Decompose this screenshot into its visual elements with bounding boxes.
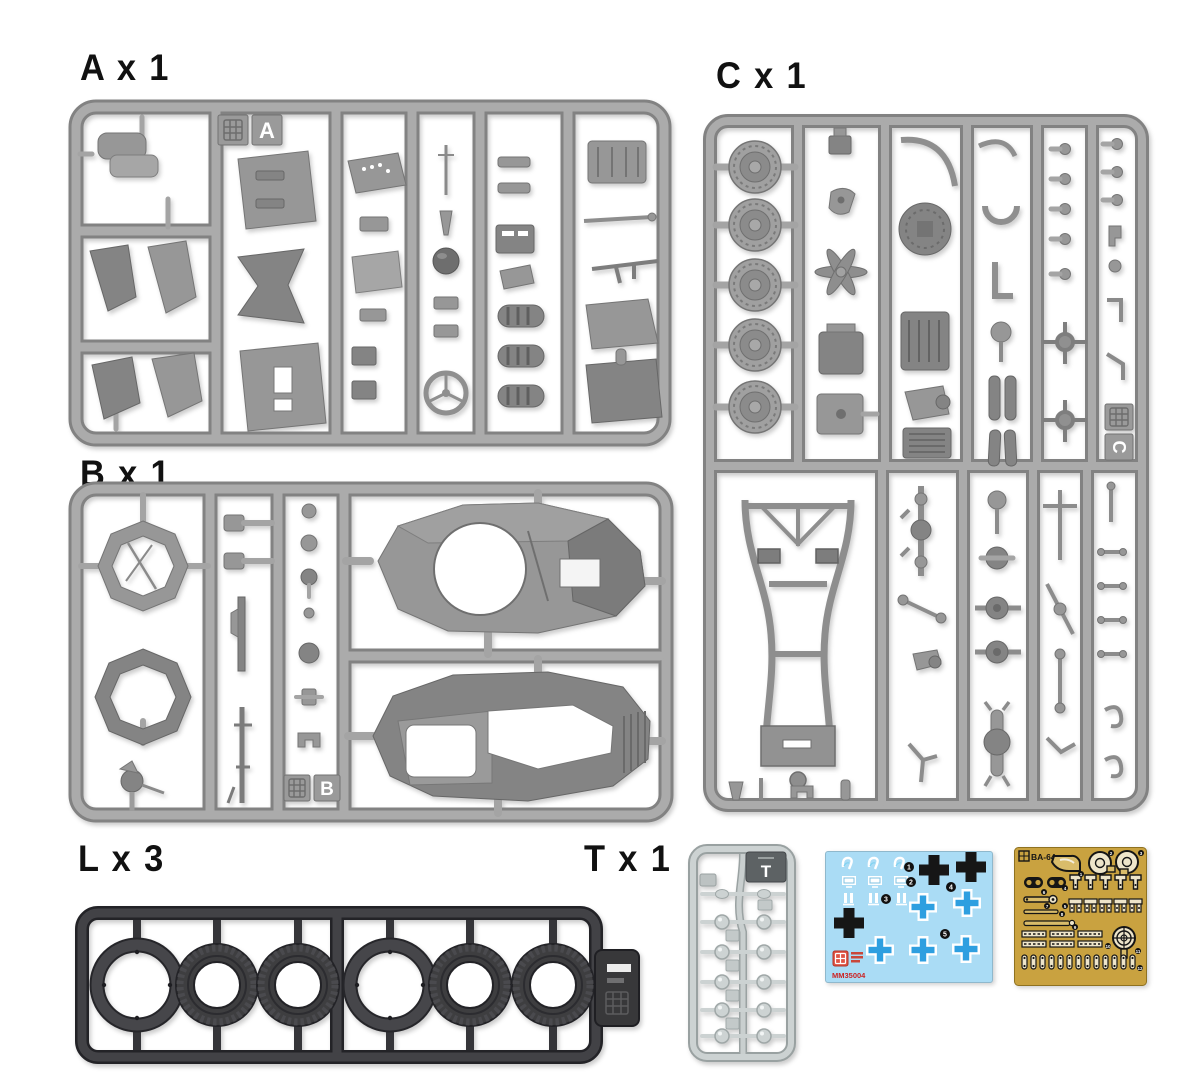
svg-text:1: 1	[1080, 872, 1083, 877]
sprue-l-label: L x 3	[78, 838, 165, 880]
svg-text:4: 4	[949, 885, 953, 892]
decal-sheet-code: MM35004	[832, 971, 866, 980]
sprue-t-tag-letter: T	[761, 862, 772, 881]
coil-spring-parts	[498, 305, 544, 407]
link-parts	[1098, 549, 1127, 658]
svg-text:4: 4	[1064, 886, 1067, 891]
sprue-a-tag: A	[218, 115, 282, 145]
sprue-b-tag-letter: B	[320, 779, 334, 800]
svg-text:3: 3	[1140, 851, 1143, 856]
road-wheel-parts	[716, 141, 795, 433]
svg-text:1: 1	[907, 865, 911, 872]
sprue-t-tag: T	[746, 852, 786, 882]
chassis-frame-part	[745, 500, 851, 788]
svg-text:2: 2	[909, 880, 913, 887]
upper-hull-part	[346, 493, 662, 654]
fan-part	[815, 246, 867, 297]
svg-text:10: 10	[1105, 944, 1111, 949]
sprue-c-illustration: C	[703, 114, 1149, 812]
sprue-a-illustration: A	[68, 99, 672, 447]
front-axle-part	[901, 486, 931, 576]
sprue-t-label: T x 1	[584, 838, 672, 880]
svg-text:5: 5	[943, 932, 947, 939]
sprue-b-illustration: B	[68, 481, 674, 823]
tyre-parts	[97, 920, 594, 1050]
sprue-b-tag: B	[284, 775, 340, 801]
photo-etch-fret: BA-64 1	[1014, 847, 1147, 986]
lower-hull-part	[348, 659, 662, 813]
rear-axle-part	[984, 702, 1010, 786]
sprue-t-illustration: T	[686, 842, 798, 1064]
sprue-c-label: C x 1	[716, 55, 808, 97]
svg-text:8: 8	[1061, 912, 1064, 917]
steering-wheel-part	[426, 373, 466, 413]
machine-gun-part	[592, 261, 658, 283]
axle-diff-parts	[975, 597, 1021, 663]
svg-text:6: 6	[1043, 890, 1046, 895]
instruction-sheet: A x 1 C x 1 B x 1 L x 3 T x 1	[0, 0, 1200, 1092]
mg-barrel-part	[228, 707, 252, 803]
axle-assembly-part	[1043, 322, 1087, 442]
svg-text:12: 12	[1137, 966, 1143, 971]
sprue-c-tag: C	[1105, 404, 1133, 460]
sprue-l-illustration	[75, 906, 645, 1064]
svg-text:7: 7	[1046, 904, 1049, 909]
exhaust-parts	[988, 376, 1017, 466]
svg-text:9: 9	[1074, 925, 1077, 930]
sprue-a-tag-letter: A	[259, 118, 275, 143]
sprue-l-tab	[595, 950, 639, 1026]
svg-text:3: 3	[884, 897, 888, 904]
sprue-c-tag-letter: C	[1109, 441, 1129, 454]
differential-part	[899, 203, 951, 255]
pump-part	[120, 761, 164, 811]
svg-text:11: 11	[1136, 949, 1141, 954]
sprue-a-label: A x 1	[80, 47, 170, 89]
svg-text:5: 5	[1064, 904, 1067, 909]
decal-sheet: 1 2 3 4 5 MM35004	[825, 851, 993, 983]
svg-text:2: 2	[1110, 851, 1113, 856]
